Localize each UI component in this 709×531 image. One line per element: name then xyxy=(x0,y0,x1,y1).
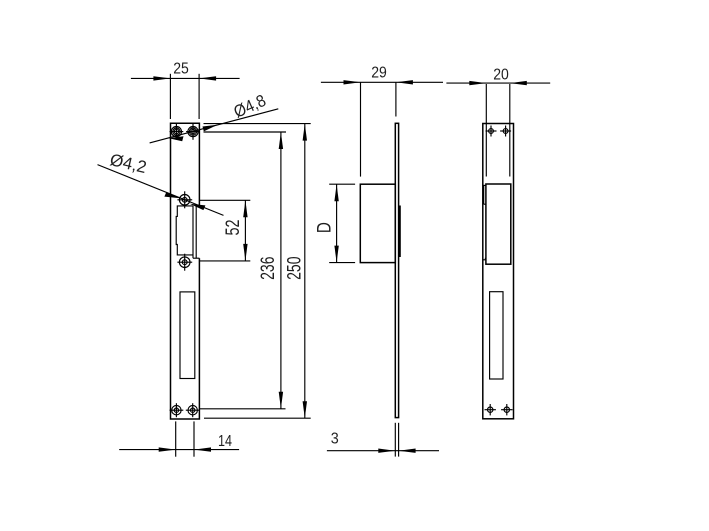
svg-text:14: 14 xyxy=(218,433,232,450)
svg-text:25: 25 xyxy=(173,61,189,78)
svg-text:52: 52 xyxy=(223,220,244,236)
svg-text:236: 236 xyxy=(258,257,279,280)
svg-text:29: 29 xyxy=(371,65,387,82)
svg-text:250: 250 xyxy=(284,257,305,280)
svg-text:3: 3 xyxy=(331,431,339,448)
svg-text:D: D xyxy=(314,222,335,233)
svg-text:20: 20 xyxy=(493,66,509,83)
